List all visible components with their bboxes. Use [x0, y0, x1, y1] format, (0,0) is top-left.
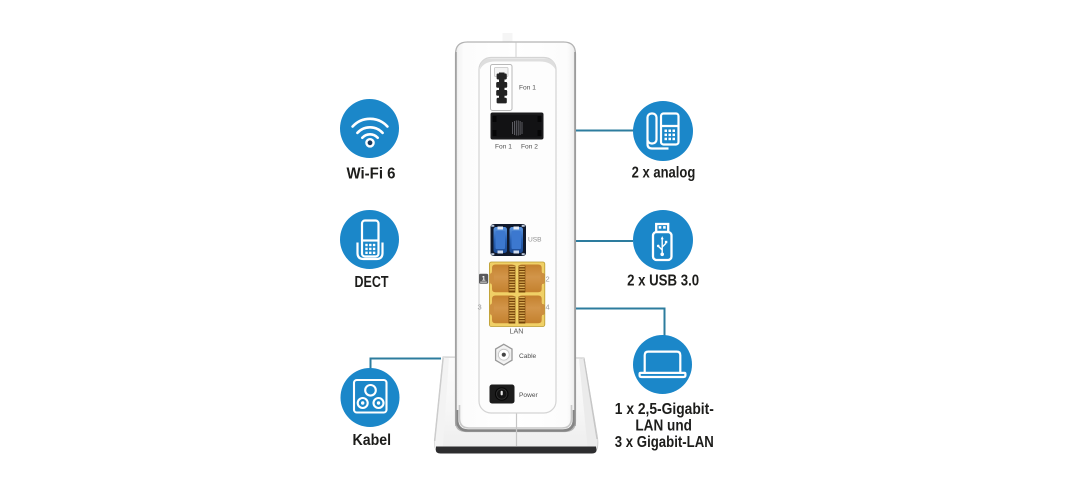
- svg-text:Fon 1: Fon 1: [495, 144, 512, 151]
- svg-text:Power: Power: [519, 392, 538, 399]
- svg-text:USB: USB: [528, 237, 542, 244]
- svg-text:1: 1: [482, 276, 486, 283]
- svg-text:Cable: Cable: [519, 353, 537, 360]
- svg-text:Fon 2: Fon 2: [521, 144, 538, 151]
- svg-text:LAN: LAN: [510, 327, 524, 336]
- svg-text:2 x analog: 2 x analog: [632, 165, 696, 182]
- svg-text:3: 3: [478, 303, 482, 312]
- svg-text:LAN und: LAN und: [635, 418, 692, 435]
- svg-text:Fon 1: Fon 1: [519, 85, 536, 92]
- svg-text:2: 2: [546, 275, 550, 284]
- svg-text:4: 4: [546, 303, 550, 312]
- svg-text:1 x 2,5-Gigabit-: 1 x 2,5-Gigabit-: [615, 401, 714, 418]
- svg-text:DECT: DECT: [355, 274, 389, 291]
- svg-text:Kabel: Kabel: [353, 432, 392, 449]
- svg-text:2 x USB 3.0: 2 x USB 3.0: [627, 272, 699, 289]
- svg-text:3 x Gigabit-LAN: 3 x Gigabit-LAN: [615, 434, 714, 451]
- svg-text:Wi-Fi 6: Wi-Fi 6: [347, 166, 396, 183]
